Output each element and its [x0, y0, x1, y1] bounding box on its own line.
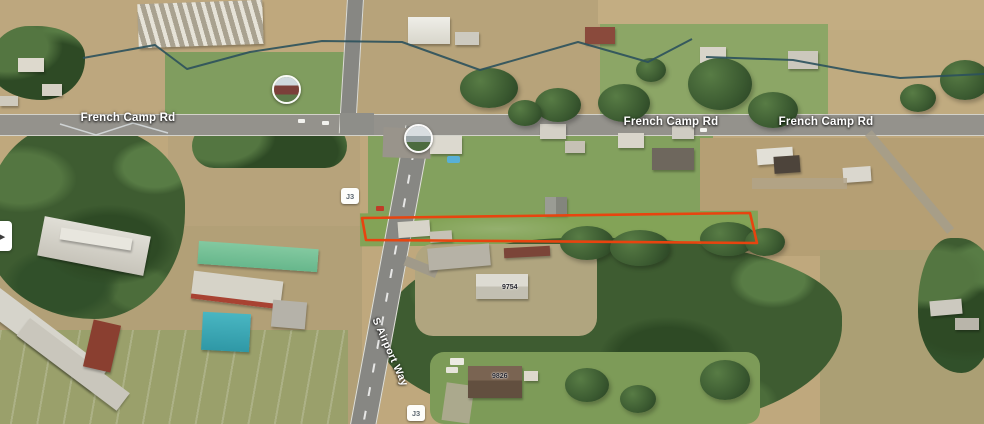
photo-thumbnail [406, 126, 431, 151]
photo-marker[interactable] [272, 75, 301, 104]
road-label-french-camp-rd-east: French Camp Rd [779, 116, 874, 128]
canal-line [60, 123, 168, 135]
chevron-right-icon: ▸ [0, 230, 5, 243]
property-boundary-outline [362, 213, 757, 243]
annotation-layer [0, 0, 984, 424]
address-label-9826: 9826 [492, 373, 508, 380]
fence-line-east [706, 57, 984, 78]
route-shield-j3-lower: J3 [407, 405, 425, 421]
photo-marker[interactable] [404, 124, 433, 153]
road-label-french-camp-rd-center: French Camp Rd [624, 116, 719, 128]
route-shield-label: J3 [412, 409, 420, 418]
route-shield-label: J3 [346, 192, 354, 201]
route-shield-j3-upper: J3 [341, 188, 359, 204]
photo-thumbnail [274, 77, 299, 102]
fence-line-west [83, 39, 692, 70]
aerial-map[interactable]: J3 J3 French Camp Rd French Camp Rd Fren… [0, 0, 984, 424]
carousel-next-button[interactable]: ▸ [0, 221, 12, 251]
address-label-9754: 9754 [502, 284, 518, 291]
road-label-french-camp-rd-west: French Camp Rd [81, 112, 176, 124]
